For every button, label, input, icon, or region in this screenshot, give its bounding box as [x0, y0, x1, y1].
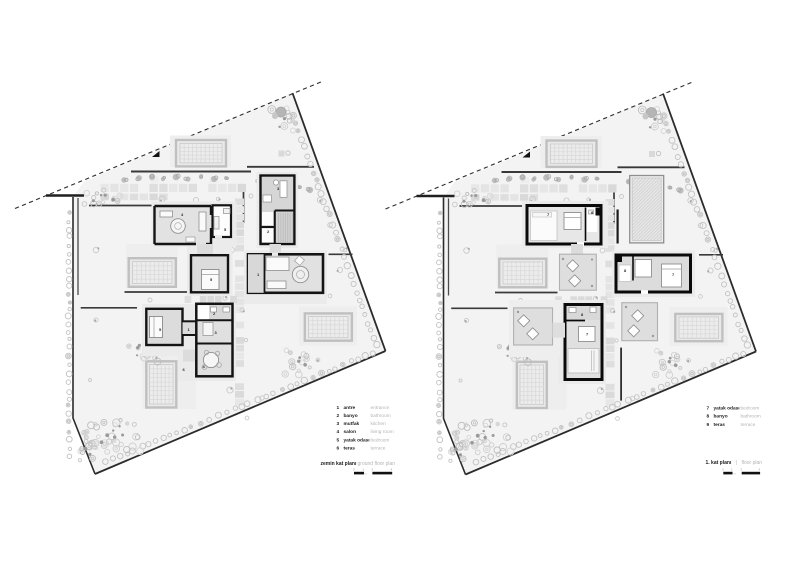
- svg-text:antre: antre: [344, 405, 356, 411]
- svg-text:bedroom: bedroom: [741, 405, 760, 411]
- svg-text:6: 6: [337, 445, 340, 451]
- svg-text:terrace: terrace: [741, 422, 756, 428]
- svg-text:3: 3: [337, 421, 340, 427]
- svg-text:bedroom: bedroom: [371, 437, 390, 443]
- svg-text:salon: salon: [344, 429, 357, 435]
- svg-text:zemin kat planı: zemin kat planı: [321, 461, 357, 467]
- svg-text:bathroom: bathroom: [371, 413, 391, 419]
- svg-text:4: 4: [337, 429, 340, 435]
- svg-text:living room: living room: [371, 429, 394, 435]
- svg-text:7: 7: [707, 405, 710, 411]
- svg-text:ground floor plan: ground floor plan: [358, 461, 396, 467]
- svg-text:5: 5: [337, 437, 340, 443]
- svg-text:yatak odası: yatak odası: [714, 405, 740, 411]
- svg-text:1. kat planı: 1. kat planı: [706, 460, 732, 466]
- svg-text:1: 1: [337, 405, 340, 411]
- svg-text:teras: teras: [344, 445, 356, 451]
- svg-text:entrance: entrance: [371, 405, 390, 411]
- svg-text:yatak odası: yatak odası: [344, 437, 370, 443]
- svg-text:banyo: banyo: [714, 414, 728, 420]
- svg-text:mutfak: mutfak: [344, 421, 360, 427]
- svg-text:bathroom: bathroom: [741, 414, 761, 420]
- svg-text:floor plan: floor plan: [742, 460, 763, 466]
- svg-text:kitchen: kitchen: [371, 421, 387, 427]
- svg-text:|: |: [736, 460, 737, 466]
- svg-text:banyo: banyo: [344, 413, 358, 419]
- svg-text:2: 2: [337, 413, 340, 419]
- svg-text:9: 9: [707, 422, 710, 428]
- svg-text:terrace: terrace: [371, 445, 386, 451]
- svg-text:teras: teras: [714, 422, 726, 428]
- svg-text:8: 8: [707, 414, 710, 420]
